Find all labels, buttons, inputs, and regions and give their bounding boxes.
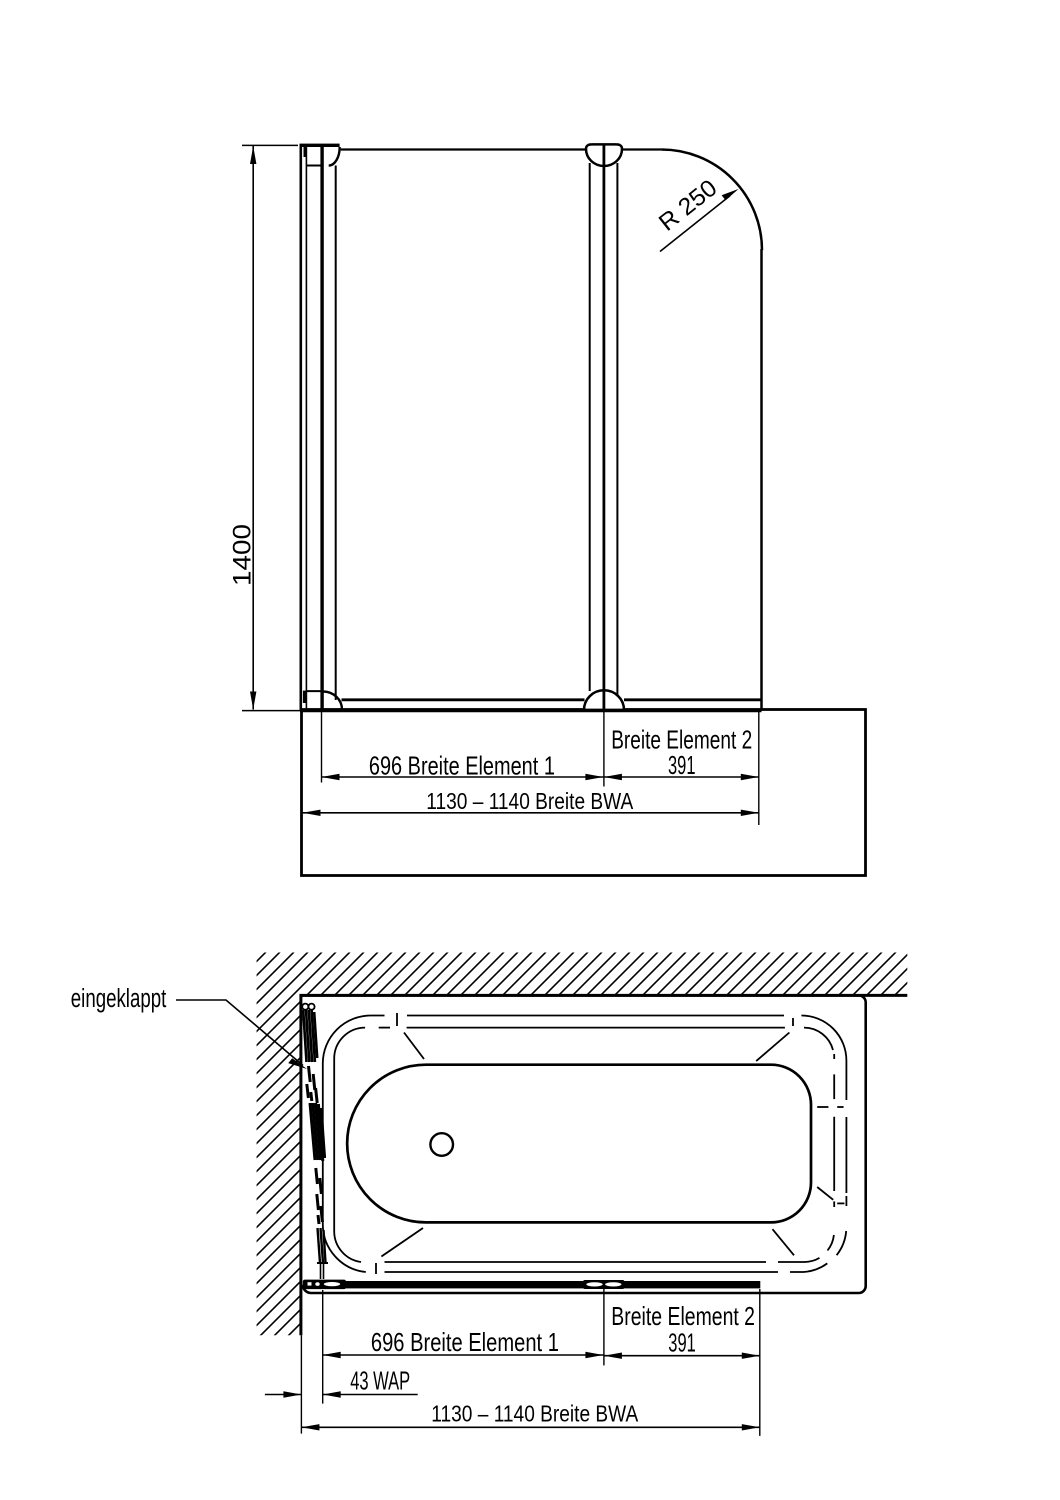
svg-text:eingeklappt: eingeklappt: [71, 985, 167, 1013]
svg-text:391: 391: [668, 1328, 696, 1358]
svg-text:1130 – 1140 Breite BWA: 1130 – 1140 Breite BWA: [431, 1401, 638, 1427]
svg-text:43 WAP: 43 WAP: [350, 1366, 410, 1396]
svg-text:696 Breite Element 1: 696 Breite Element 1: [371, 1327, 559, 1357]
svg-text:1400: 1400: [229, 524, 257, 586]
svg-text:1130 – 1140 Breite BWA: 1130 – 1140 Breite BWA: [426, 788, 633, 814]
svg-text:696 Breite Element 1: 696 Breite Element 1: [369, 751, 555, 781]
svg-text:Breite Element 2: Breite Element 2: [611, 1301, 755, 1331]
svg-text:391: 391: [668, 750, 696, 780]
